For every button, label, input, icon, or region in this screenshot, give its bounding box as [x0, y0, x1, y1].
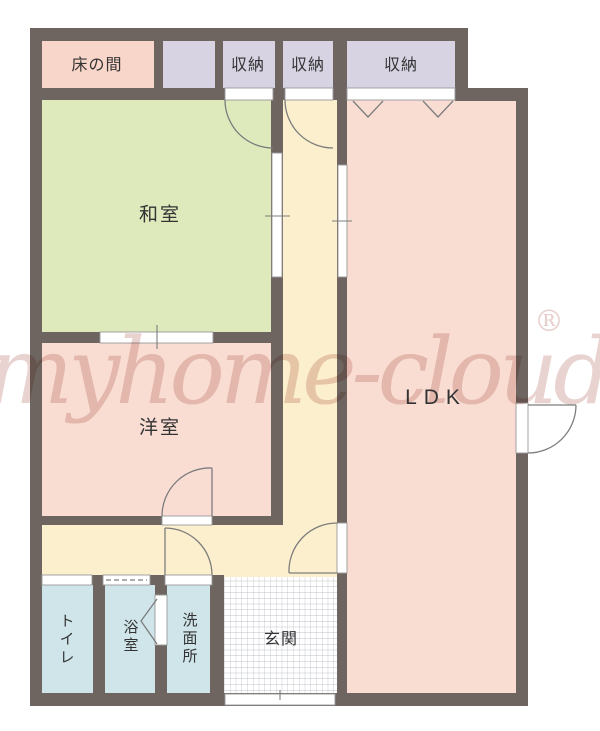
storage-c-folding-door: [347, 88, 455, 100]
wall-yoshitsu-bottom: [30, 516, 283, 525]
storage-b-door-opening: [285, 88, 333, 100]
wall-div-tokonoma: [154, 41, 163, 89]
washroom-label: 洗面所: [179, 612, 200, 666]
ldk-exterior-door-opening: [516, 403, 528, 453]
storage-a-label: 収納: [231, 51, 265, 75]
wall-genkan-left: [210, 575, 224, 695]
toilet-door-opening: [42, 575, 92, 585]
toilet-label: トイレ: [56, 613, 77, 667]
wall-top: [30, 28, 468, 41]
wall-div-storage-ab: [275, 41, 283, 89]
washroom-door-opening: [165, 575, 212, 585]
closet-unlabeled: [163, 41, 215, 89]
wall-left: [30, 28, 42, 706]
wall-div-storage-bc: [333, 41, 347, 89]
ldk-exterior-door-arc: [528, 405, 576, 453]
washitsu-sliding-door: [272, 153, 282, 277]
corridor-ldk-door-opening: [337, 523, 347, 573]
washitsu-label: 和室: [139, 200, 181, 227]
wall-div-closet: [215, 41, 223, 89]
wall-toilet-bath: [93, 585, 105, 695]
floor-plan: myhome-cloud ® 床の間 収納 収納 収納 和室 洋室 LDK 玄関…: [0, 0, 600, 731]
yoshitsu-door-opening: [162, 516, 212, 525]
bath-folding-door: [155, 595, 167, 645]
ldk-label: LDK: [405, 386, 467, 410]
wall-right: [516, 88, 528, 706]
storage-c-label: 収納: [384, 51, 418, 75]
floor-plan-drawing: [0, 0, 600, 731]
genkan-label: 玄関: [264, 625, 298, 649]
tokonoma-label: 床の間: [71, 51, 122, 75]
yoshitsu-label: 洋室: [139, 413, 181, 440]
bath-label: 浴室: [120, 619, 141, 655]
storage-a-door-opening: [225, 88, 273, 100]
storage-b-label: 収納: [291, 51, 325, 75]
